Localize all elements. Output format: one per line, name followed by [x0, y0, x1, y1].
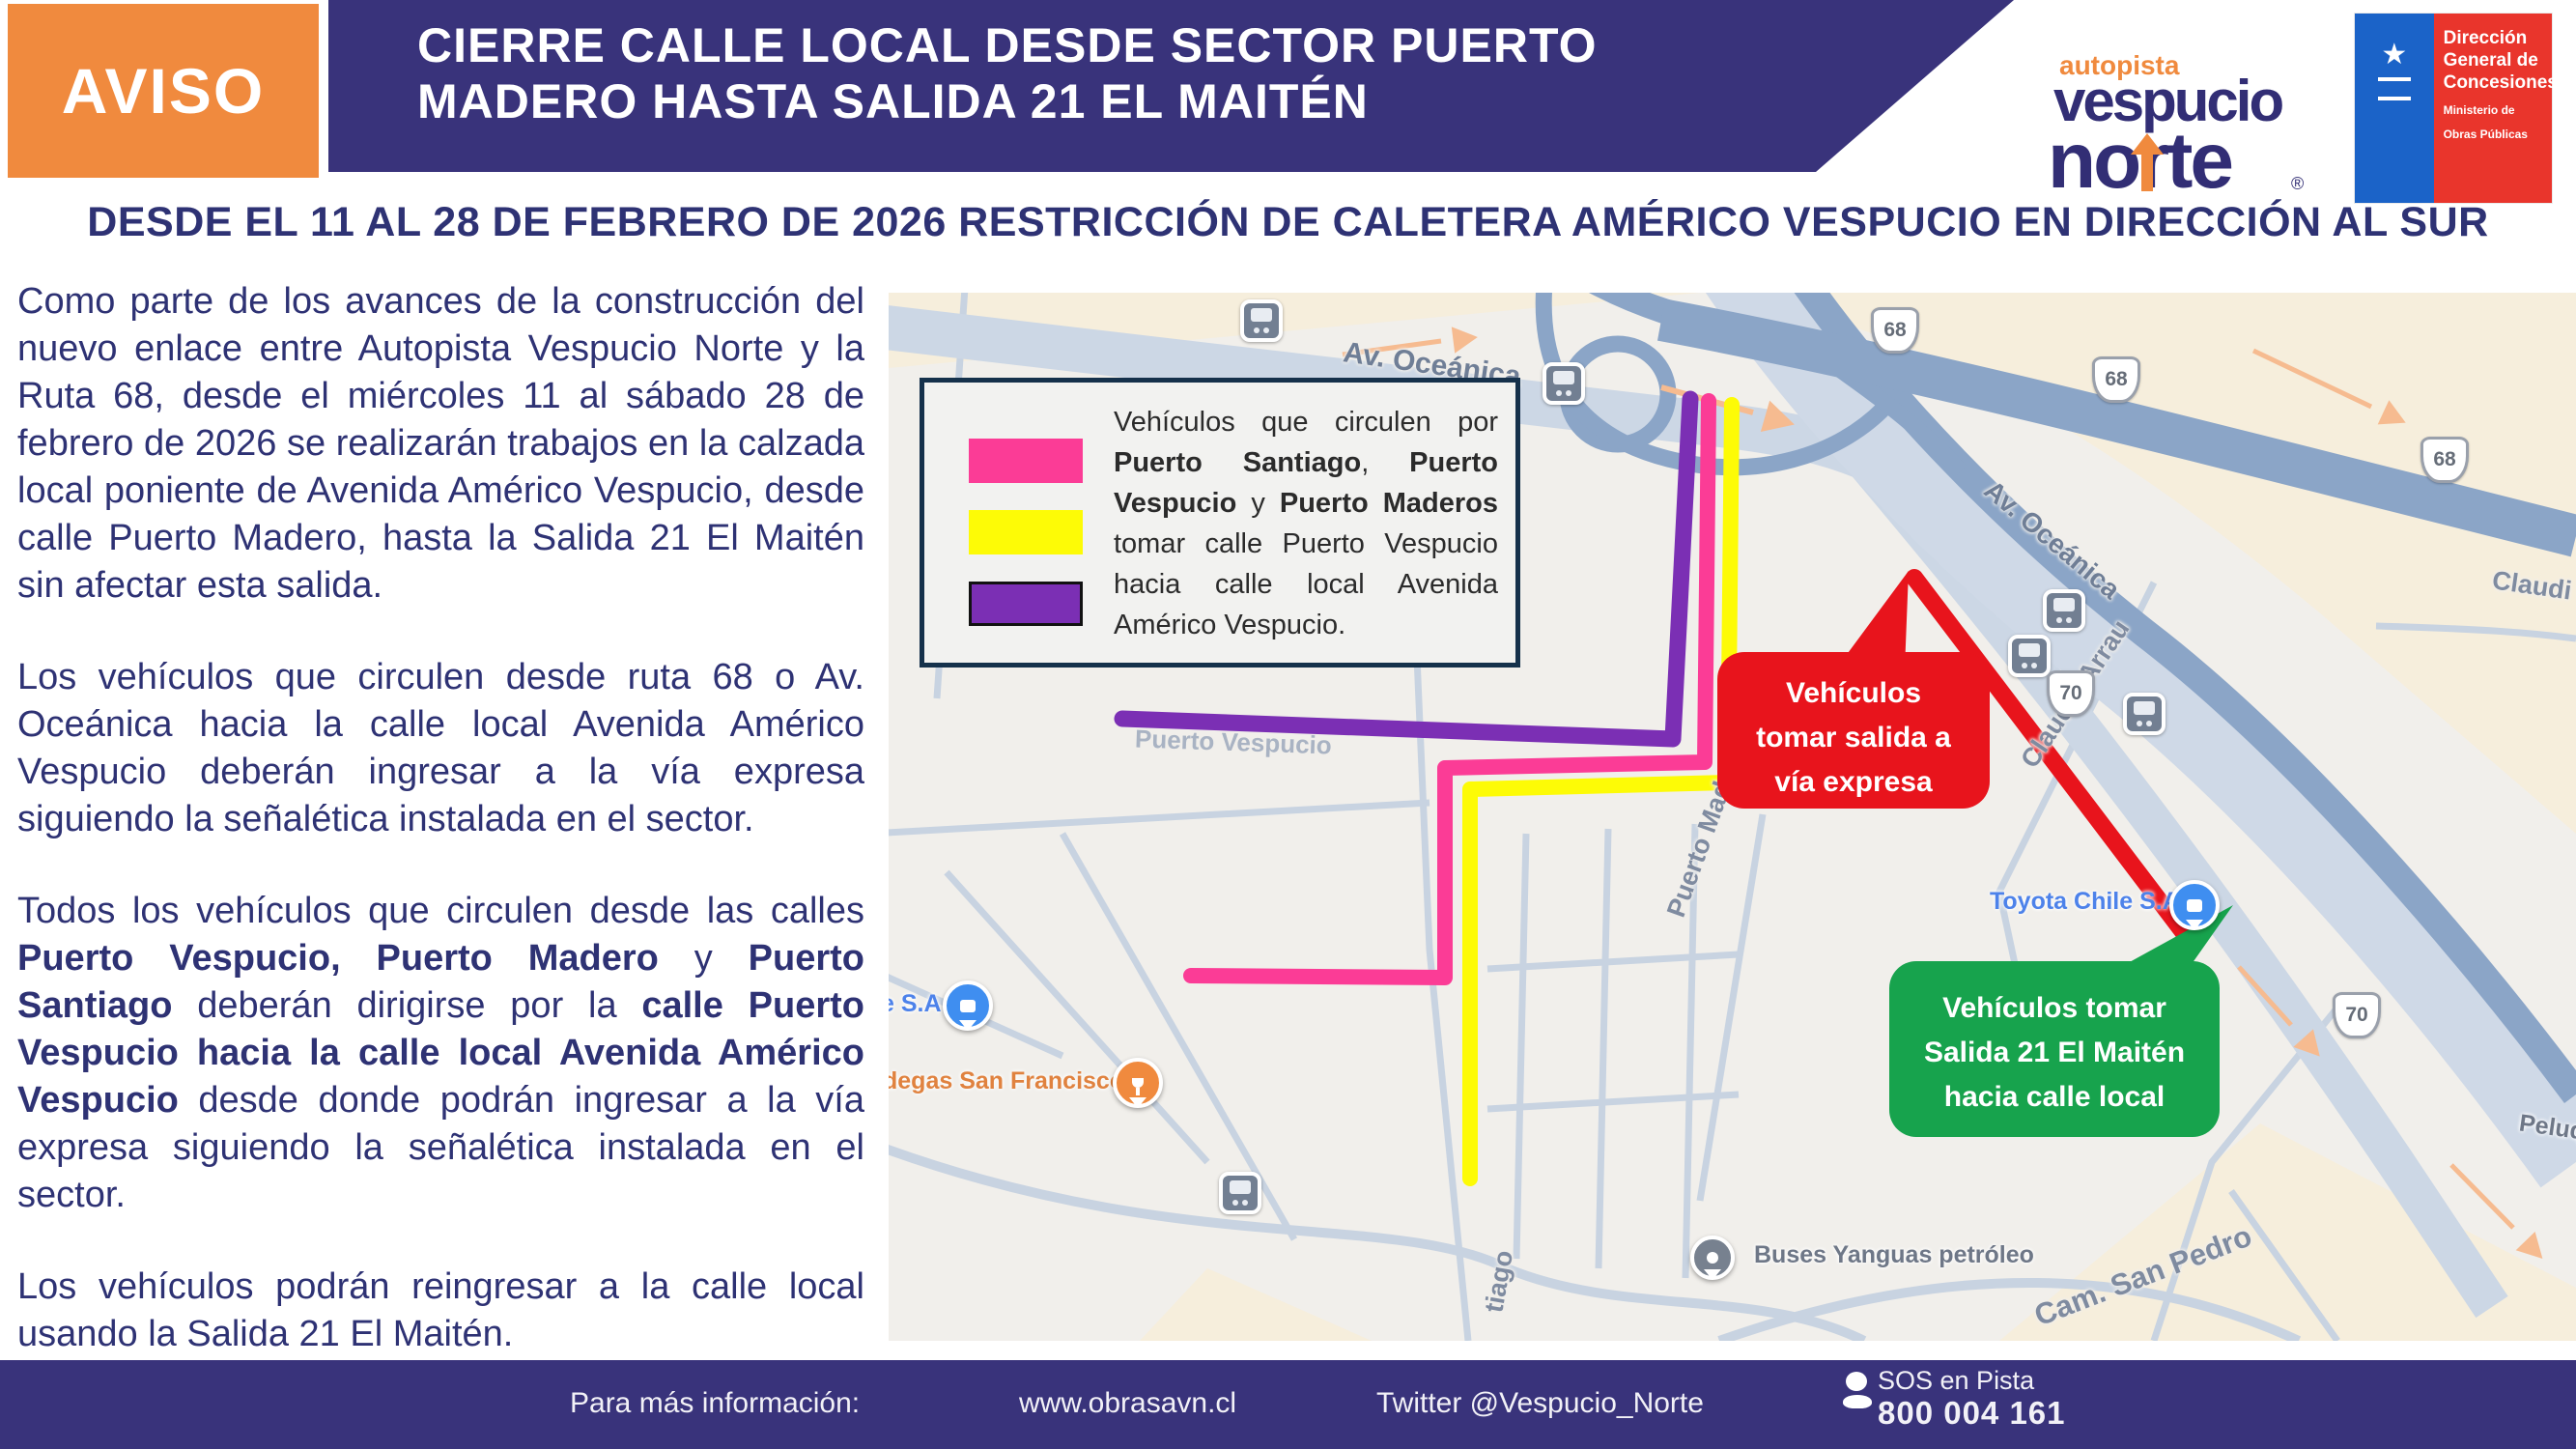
detour-map: Puerto Vespucio — [889, 293, 2576, 1341]
date-restriction-subtitle: DESDE EL 11 AL 28 DE FEBRERO DE 2026 RES… — [29, 199, 2547, 246]
callout-red-line2: tomar salida a — [1717, 716, 1990, 760]
legend-box: Vehículos que circulen por Puerto Santia… — [920, 378, 1520, 668]
callout-green-line3: hacia calle local — [1889, 1075, 2220, 1120]
callout-red-line3: vía expresa — [1717, 760, 1990, 805]
transit-icon — [1240, 299, 1283, 342]
up-arrow-icon — [2131, 139, 2164, 191]
gov-text-panel: Dirección General de Concesiones Ministe… — [2434, 14, 2552, 203]
gov-emblem-panel: ★ — [2355, 14, 2434, 203]
transit-icon — [2008, 635, 2051, 677]
land-patch — [1140, 1268, 1372, 1341]
notice-poster: AVISO CIERRE CALLE LOCAL DESDE SECTOR PU… — [0, 0, 2576, 1449]
transit-icon — [2123, 693, 2166, 735]
paragraph-1: Como parte de los avances de la construc… — [17, 278, 864, 610]
callout-green: Vehículos tomar Salida 21 El Maitén haci… — [1889, 961, 2220, 1137]
poi-pin-bar-icon — [1113, 1058, 1163, 1108]
route-shield-68: 68 — [2420, 437, 2469, 483]
gov-title-line3: Concesiones — [2444, 71, 2544, 94]
gov-ministry-line1: Ministerio de — [2444, 103, 2544, 118]
aviso-badge-label: AVISO — [62, 54, 265, 128]
page-title: CIERRE CALLE LOCAL DESDE SECTOR PUERTO M… — [417, 17, 1597, 129]
footer-info-label: Para más información: — [570, 1387, 860, 1420]
sos-operator-icon — [1843, 1372, 1872, 1414]
route-shield-70: 70 — [2047, 670, 2095, 717]
legend-text: Vehículos que circulen por Puerto Santia… — [1114, 402, 1498, 645]
footer-twitter: Twitter @Vespucio_Norte — [1376, 1387, 1704, 1420]
vespucio-norte-logo: autopista vespucio norte ® — [2038, 50, 2328, 214]
route-shield-68: 68 — [2092, 356, 2140, 403]
header-banner: CIERRE CALLE LOCAL DESDE SECTOR PUERTO M… — [328, 0, 2014, 172]
gov-title-line2: General de — [2444, 49, 2544, 71]
paragraph-2: Los vehículos que circulen desde ruta 68… — [17, 654, 864, 843]
page-title-line1: CIERRE CALLE LOCAL DESDE SECTOR PUERTO — [417, 17, 1597, 73]
emblem-bars-icon — [2378, 77, 2411, 100]
poi-label-buses: Buses Yanguas petróleo — [1754, 1241, 2034, 1269]
aviso-badge: AVISO — [8, 4, 319, 178]
registered-mark: ® — [2291, 174, 2304, 194]
poi-pin-store-icon — [943, 980, 993, 1031]
poi-pin-buses-icon — [1690, 1236, 1735, 1280]
paragraph-3: Todos los vehículos que circulen desde l… — [17, 888, 864, 1219]
gov-concessions-logo: ★ Dirección General de Concesiones Minis… — [2355, 14, 2552, 203]
poi-label-bodegas: degas San Francisco — [889, 1067, 1124, 1095]
sos-phone-number: 800 004 161 — [1878, 1395, 2066, 1432]
legend-swatch-yellow — [969, 510, 1083, 554]
legend-swatch-pink — [969, 439, 1083, 483]
gov-ministry-line2: Obras Públicas — [2444, 128, 2544, 142]
poi-label-esa: e S.A — [889, 990, 942, 1018]
callout-red: Vehículos tomar salida a vía expresa — [1717, 652, 1990, 809]
footer-website: www.obrasavn.cl — [1019, 1387, 1236, 1420]
route-shield-68: 68 — [1871, 307, 1919, 354]
callout-green-line2: Salida 21 El Maitén — [1889, 1031, 2220, 1075]
callout-green-line1: Vehículos tomar — [1889, 986, 2220, 1031]
paragraph-4: Los vehículos podrán reingresar a la cal… — [17, 1264, 864, 1358]
poi-label-toyota: Toyota Chile S.A — [1990, 888, 2180, 916]
transit-icon — [2043, 589, 2085, 632]
transit-icon — [1543, 362, 1585, 405]
footer: Para más información: www.obrasavn.cl Tw… — [0, 1360, 2576, 1449]
sos-label: SOS en Pista — [1878, 1366, 2034, 1396]
coat-of-arms-icon: ★ — [2381, 41, 2407, 70]
transit-icon — [1219, 1172, 1261, 1214]
body-text: Como parte de los avances de la construc… — [17, 278, 864, 1403]
route-shield-70: 70 — [2333, 992, 2381, 1038]
callout-red-line1: Vehículos — [1717, 671, 1990, 716]
legend-swatch-purple — [969, 582, 1083, 626]
poi-pin-toyota-icon — [2169, 880, 2220, 930]
gov-title-line1: Dirección — [2444, 27, 2544, 49]
page-title-line2: MADERO HASTA SALIDA 21 EL MAITÉN — [417, 73, 1597, 129]
